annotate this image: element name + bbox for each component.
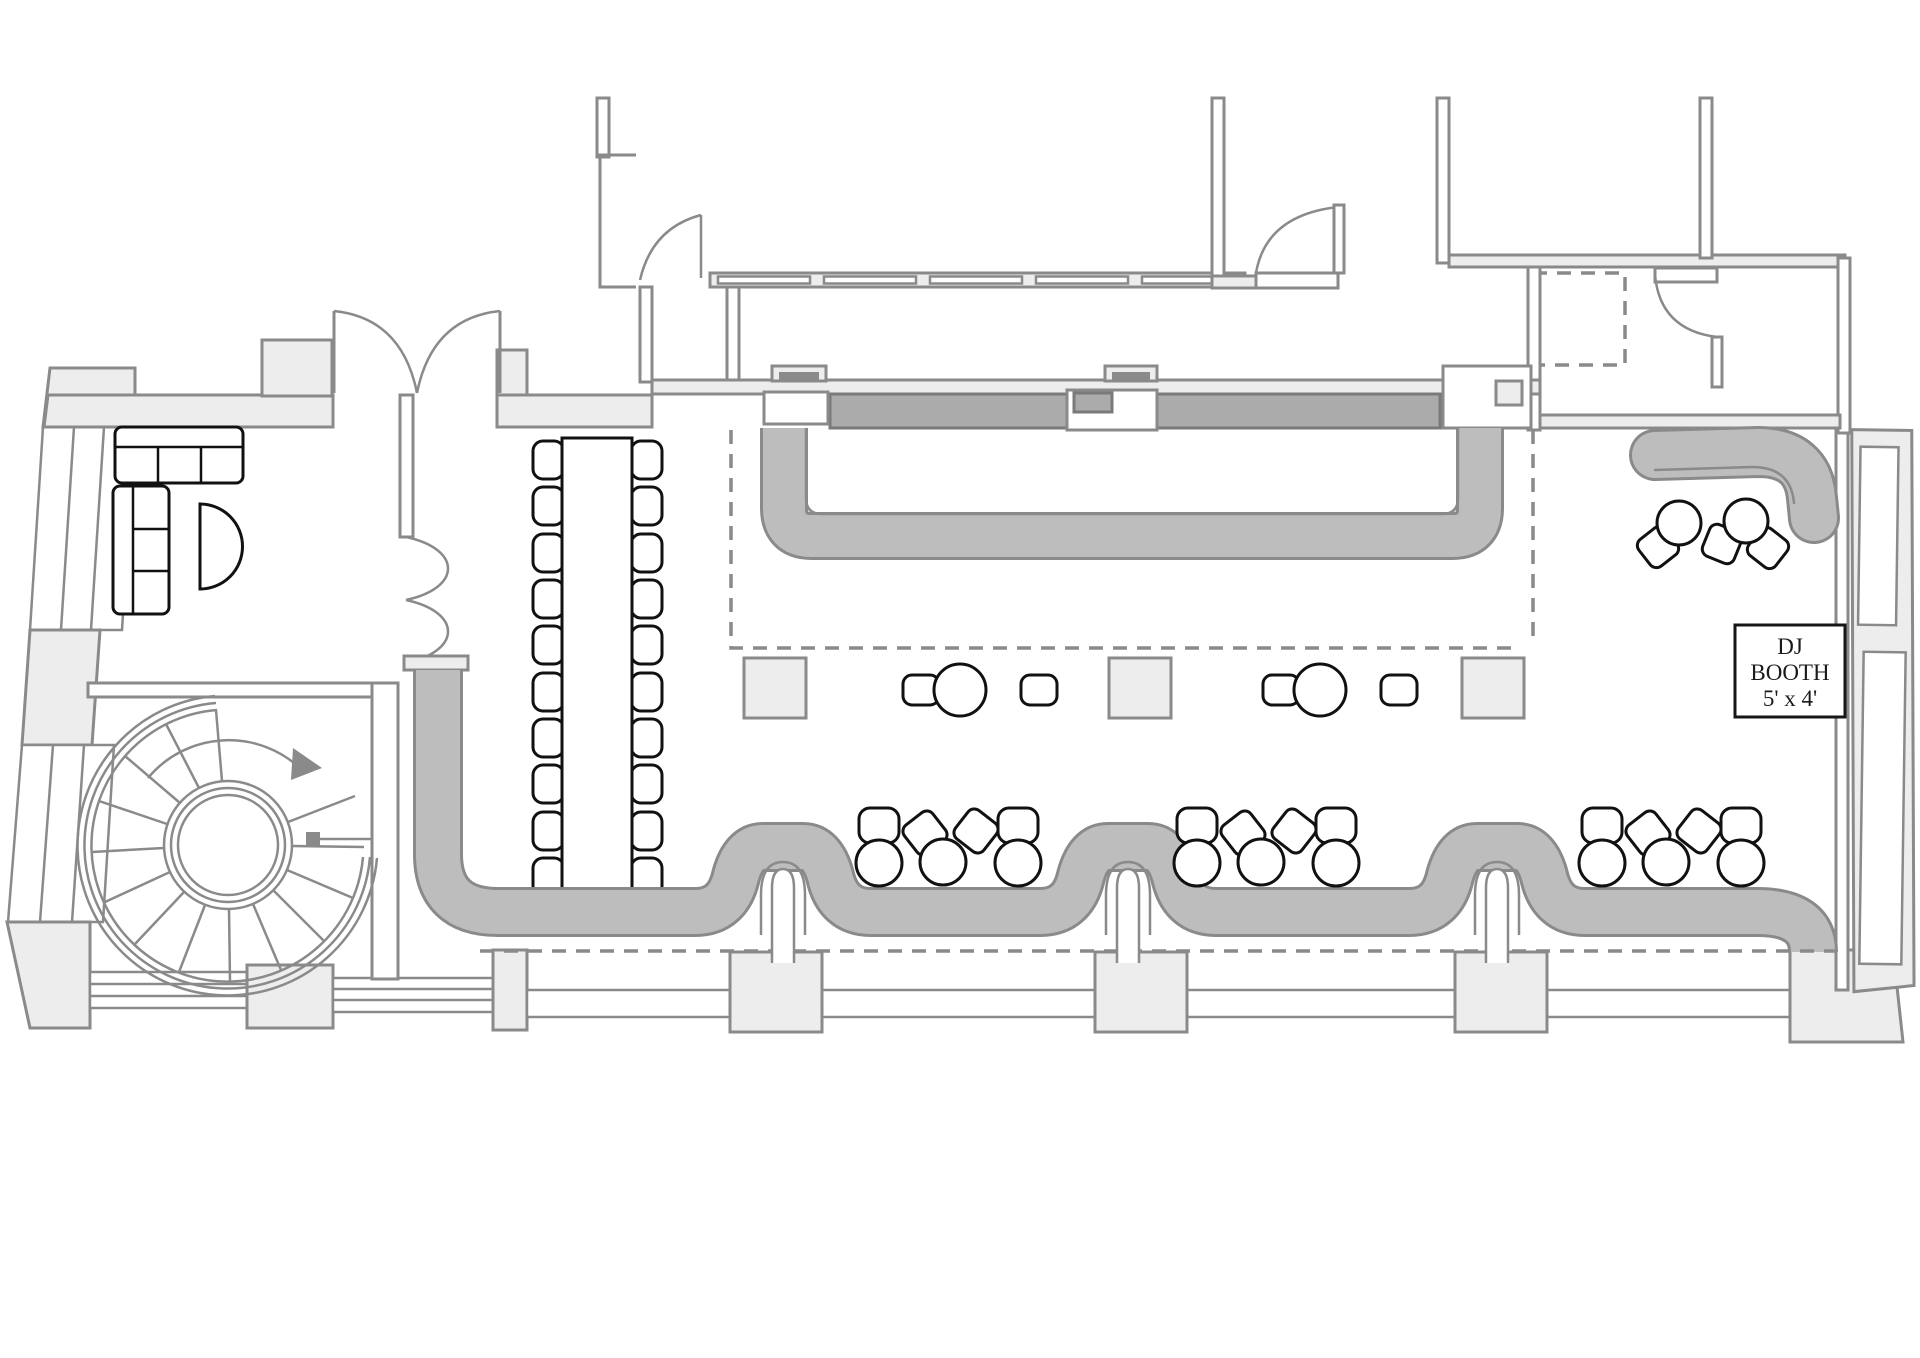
chair (859, 808, 899, 843)
chair (533, 626, 564, 664)
chair (533, 719, 564, 757)
partition-glass (930, 277, 1022, 284)
floor-plan: DJ BOOTH 5' x 4' (0, 0, 1920, 1358)
round-table (1643, 839, 1689, 885)
right-window-lower (1859, 652, 1905, 965)
round-table (1718, 840, 1764, 886)
round-table (856, 840, 902, 886)
chair (631, 441, 662, 479)
closet-door-stub (1712, 337, 1722, 387)
bar-counter-inner-edge (806, 428, 1458, 514)
chair (1316, 808, 1356, 843)
chair (1381, 675, 1417, 705)
bar-counter-fill (784, 428, 1480, 536)
chair (1582, 808, 1622, 843)
round-table (1238, 839, 1284, 885)
dj-booth-label-line1: DJ (1777, 634, 1803, 659)
round-table (1294, 664, 1346, 716)
chair (631, 673, 662, 711)
lounge-room (113, 395, 448, 663)
half-round-table (200, 504, 243, 589)
chair (631, 719, 662, 757)
chair (631, 765, 662, 803)
sofa-vertical (113, 486, 169, 614)
stair-room-top-wall (88, 683, 398, 697)
seating-group (1174, 806, 1359, 886)
entry-door-swing-left (334, 311, 417, 393)
bar-pass-mid-chip (1074, 393, 1112, 412)
round-table (1579, 840, 1625, 886)
chair (533, 765, 564, 803)
chair (533, 487, 564, 525)
bottom-pier-4 (1095, 952, 1187, 1032)
chair (631, 580, 662, 618)
spiral-staircase (78, 696, 377, 995)
chair (533, 812, 564, 850)
lounge-top-wall (44, 395, 333, 427)
stair-treads (92, 710, 364, 981)
closet-door-swing (1655, 275, 1717, 337)
top-right-corner-wall (1838, 258, 1850, 433)
floor-plan-canvas: DJ BOOTH 5' x 4' (0, 0, 1920, 1358)
upper-wall-a2 (1212, 276, 1256, 288)
pilaster-2-chip (1112, 372, 1150, 380)
top-wall-mid (497, 395, 652, 427)
round-table (1657, 501, 1701, 545)
bottom-window-6 (1547, 990, 1790, 1017)
seating-group (1579, 806, 1764, 886)
chair (631, 626, 662, 664)
upper-wall-c (1700, 98, 1712, 258)
banquette-wall-stub (404, 656, 468, 670)
round-table (995, 840, 1041, 886)
communal-table-group (533, 438, 662, 902)
partition-glass (718, 277, 810, 284)
bottom-window-4 (822, 990, 1095, 1017)
column (1462, 658, 1524, 718)
partition-glass (824, 277, 916, 284)
upper-wall-a (1212, 98, 1224, 280)
bar-pass-left (764, 392, 828, 424)
round-table (1313, 840, 1359, 886)
column (744, 658, 806, 718)
dj-booth-label-line3: 5' x 4' (1763, 686, 1817, 711)
entry-door-swing-right (417, 311, 500, 393)
upper-door-swing-2 (1256, 207, 1338, 273)
upper-door-swing (640, 215, 701, 280)
bottom-window-1 (90, 972, 247, 1008)
bar-station-chip (1496, 381, 1522, 405)
entry-jamb-left (262, 340, 332, 396)
lounge-right-wall (400, 395, 413, 537)
stair-room-right-wall (372, 683, 398, 979)
bottom-pier-5 (1455, 952, 1547, 1032)
vestibule-wall-left (640, 287, 652, 382)
bottom-window-3 (527, 990, 730, 1017)
upper-door-alcove (600, 155, 636, 287)
banquette-seating-groups (856, 806, 1764, 886)
upper-left-wall-stub (597, 98, 609, 157)
chair (533, 534, 564, 572)
upper-door-leaf-2 (1256, 273, 1338, 288)
communal-chairs-left (533, 441, 564, 896)
cocktail-table-group (1263, 664, 1417, 716)
closet-door-leaf (1655, 268, 1717, 282)
chair (631, 487, 662, 525)
upper-top-wall (1449, 255, 1845, 267)
stair-newel (306, 832, 320, 846)
round-table (920, 839, 966, 885)
chair (1021, 675, 1057, 705)
upper-jamb (1334, 205, 1344, 273)
pilaster-1-chip (779, 372, 819, 380)
chair (533, 441, 564, 479)
corner-pier-bottom-left (7, 922, 90, 1028)
cocktail-table-group (903, 664, 1057, 716)
bottom-pier-3 (730, 952, 822, 1032)
partition-glass (1036, 277, 1128, 284)
dj-booth-label-line2: BOOTH (1750, 660, 1829, 685)
right-room-top-wall (1540, 415, 1840, 428)
stair-arrow-head (291, 748, 322, 780)
right-window-upper (1858, 447, 1898, 626)
bar-zone (44, 311, 1540, 648)
chair (533, 580, 564, 618)
chair (533, 673, 564, 711)
round-table (934, 664, 986, 716)
chair (631, 812, 662, 850)
communal-chairs-right (631, 441, 662, 896)
closet-dashed-outline (1533, 273, 1625, 365)
stair-direction-arrow (148, 740, 302, 778)
seating-group (856, 806, 1041, 886)
communal-table (562, 438, 632, 902)
vestibule-wall-right (727, 287, 739, 382)
bottom-window-5 (1187, 990, 1455, 1017)
right-lounge (1540, 415, 1840, 572)
round-table (1174, 840, 1220, 886)
lounge-door-swing-top (406, 537, 448, 600)
chair (1721, 808, 1761, 843)
stair-room (78, 683, 398, 995)
sofa-horizontal (115, 427, 243, 483)
bottom-window-2 (333, 978, 493, 1012)
bottom-pier-2 (493, 950, 527, 1030)
right-wall (1844, 430, 1920, 993)
round-table (1724, 499, 1768, 543)
chair (1177, 808, 1217, 843)
lounge-door-swing-bottom (406, 600, 448, 663)
upper-wall-b (1437, 98, 1449, 263)
chair (998, 808, 1038, 843)
dj-booth: DJ BOOTH 5' x 4' (1735, 625, 1845, 717)
column (1109, 658, 1171, 718)
chair (631, 534, 662, 572)
